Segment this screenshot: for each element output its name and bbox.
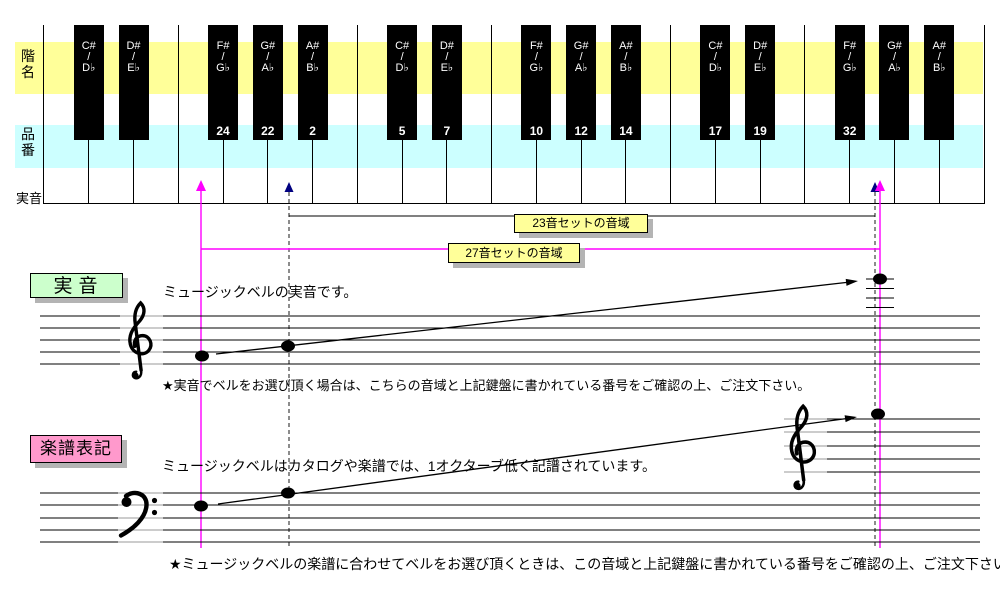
black-key: D# / E♭7 (432, 25, 462, 140)
note-f3-written (194, 501, 208, 512)
black-key-number: 32 (835, 124, 865, 138)
key-separator (491, 25, 492, 203)
black-key: A# / B♭2 (298, 25, 328, 140)
white-key-number (447, 147, 492, 163)
g6-range-line-magenta (875, 180, 885, 548)
black-key-label: F# / G♭ (835, 41, 865, 74)
white-key-label (330, 58, 350, 74)
black-key: G# / A♭22 (253, 25, 283, 140)
white-key-number (805, 147, 850, 163)
treble-staff (40, 316, 980, 364)
notation-treble-clef-icon (791, 406, 814, 489)
key-separator (357, 25, 358, 203)
black-key-number: 19 (745, 124, 775, 138)
white-key-number (357, 147, 402, 163)
row-label-actual-pitch: 実音 (16, 188, 42, 207)
black-key-label: A# / B♭ (924, 41, 954, 74)
badge-notation: 楽譜表記 (30, 435, 122, 463)
white-key-number (402, 147, 447, 163)
black-key-label: G# / A♭ (253, 41, 283, 74)
keyboard: C# / D♭D# / E♭F# / G♭24G# / A♭22A# / B♭2… (43, 25, 985, 204)
black-key: F# / G♭10 (521, 25, 551, 140)
white-key-label (466, 58, 486, 74)
black-key: G# / A♭12 (566, 25, 596, 140)
white-key-label (643, 58, 663, 74)
white-key-label (780, 58, 800, 74)
black-key: C# / D♭17 (700, 25, 730, 140)
note-g5-written (871, 409, 885, 420)
bass-staff (40, 493, 980, 542)
white-key-number (626, 147, 671, 163)
black-key: C# / D♭5 (387, 25, 417, 140)
black-key-number: 12 (566, 124, 596, 138)
treble-clef-icon (130, 303, 151, 379)
octave-mark (671, 188, 716, 203)
black-key-number: 17 (700, 124, 730, 138)
octave-mark (44, 188, 89, 203)
note-g6 (873, 274, 887, 285)
black-key-label: D# / E♭ (119, 41, 149, 74)
notation-note: ★ミュージックベルの楽譜に合わせてベルをお選び頂くときは、この音域と上記鍵盤に書… (169, 554, 1000, 574)
white-key-label (676, 58, 696, 74)
white-key-number (850, 147, 895, 163)
white-key-label (49, 58, 69, 74)
row-label-scale-name: 階名 (21, 48, 37, 80)
black-key-label: D# / E♭ (745, 41, 775, 74)
black-key-label: A# / B♭ (611, 41, 641, 74)
g6-ledger-lines (866, 279, 894, 308)
bell-range-diagram: 階名 品番 実音 C# / D♭D# / E♭F# / G♭24G# / A♭2… (0, 0, 1000, 600)
white-key-label (363, 58, 383, 74)
actual-pitch-note: ★実音でベルをお選び頂く場合は、こちらの音域と上記鍵盤に書かれている番号をご確認… (162, 375, 810, 394)
white-key-number (268, 147, 313, 163)
note-a4 (281, 341, 295, 352)
black-key-label: C# / D♭ (387, 41, 417, 74)
white-key-number (313, 147, 358, 163)
white-key-number (715, 147, 760, 163)
white-key-number (581, 147, 626, 163)
white-key-label (153, 58, 173, 74)
notation-description: ミュージックベルはカタログや楽譜では、1オクターブ低く記譜されています。 (162, 456, 656, 476)
white-key-number (223, 147, 268, 163)
black-key-number: 5 (387, 124, 417, 138)
black-key-label: A# / B♭ (298, 41, 328, 74)
range-23-label: 23音セットの音域 (514, 214, 648, 233)
f4-range-line (196, 180, 206, 548)
black-key-number: 14 (611, 124, 641, 138)
black-key-number: 24 (208, 124, 238, 138)
bass-clef-icon (121, 493, 157, 536)
actual-pitch-description: ミュージックベルの実音です。 (163, 282, 357, 302)
black-key: D# / E♭ (119, 25, 149, 140)
black-key: G# / A♭ (879, 25, 909, 140)
a4-range-line (285, 182, 294, 546)
badge-actual-pitch: 実音 (30, 273, 123, 298)
black-key-number: 22 (253, 124, 283, 138)
black-key: D# / E♭19 (745, 25, 775, 140)
white-key-number (178, 147, 223, 163)
black-key: A# / B♭14 (611, 25, 641, 140)
g6-range-line-navy (871, 182, 880, 546)
black-key-number: 7 (432, 124, 462, 138)
octave-mark (357, 188, 402, 203)
black-key: A# / B♭ (924, 25, 954, 140)
white-key-label (184, 58, 204, 74)
black-key-label: G# / A♭ (879, 41, 909, 74)
key-separator (804, 25, 805, 203)
white-key-number (536, 147, 581, 163)
white-key-number (492, 147, 537, 163)
black-key: C# / D♭ (74, 25, 104, 140)
white-key-label (497, 58, 517, 74)
note-f4 (195, 351, 209, 362)
white-key-number (671, 147, 716, 163)
white-key-number (760, 147, 805, 163)
black-key-label: C# / D♭ (700, 41, 730, 74)
black-key: F# / G♭32 (835, 25, 865, 140)
row-label-product-no: 品番 (21, 126, 37, 158)
white-key-label (957, 58, 977, 74)
black-key: F# / G♭24 (208, 25, 238, 140)
black-key-label: F# / G♭ (521, 41, 551, 74)
note-a3-written (281, 488, 295, 499)
black-key-number: 2 (298, 124, 328, 138)
black-key-label: D# / E♭ (432, 41, 462, 74)
notation-treble-staff (784, 419, 980, 472)
black-key-number: 10 (521, 124, 551, 138)
black-key-label: G# / A♭ (566, 41, 596, 74)
white-key-label (810, 58, 830, 74)
range-27-label: 27音セットの音域 (448, 243, 580, 263)
black-key-label: C# / D♭ (74, 41, 104, 74)
key-separator (670, 25, 671, 203)
black-key-label: F# / G♭ (208, 41, 238, 74)
key-separator (178, 25, 179, 203)
